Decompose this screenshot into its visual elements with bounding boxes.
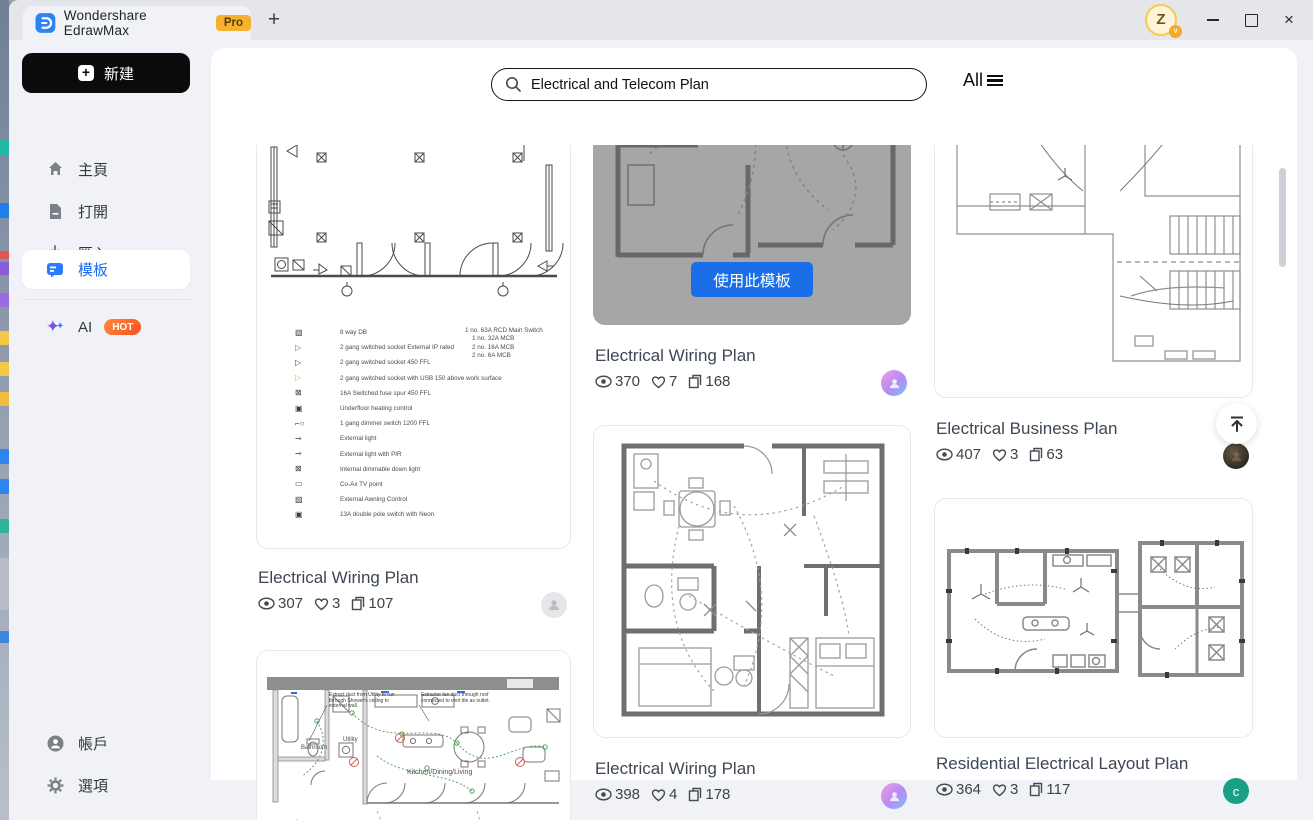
sidebar-item-open[interactable]: 打開 (22, 197, 190, 225)
likes-icon (992, 783, 1007, 797)
template-title[interactable]: Residential Electrical Layout Plan (936, 754, 1188, 774)
app-window: Wondershare EdrawMax Pro + Z ∨ × + 新建 主頁 (9, 0, 1313, 820)
legend-symbol-icon: ⊸ (295, 435, 309, 443)
room-label: Kitchen/Dining/Living (407, 769, 472, 776)
sidebar-item-label: 打開 (78, 201, 108, 222)
legend-row: ⊠ 16A Switched fuse spur 450 FFL (295, 386, 465, 401)
sidebar-item-label: 模板 (78, 259, 108, 280)
template-title[interactable]: Electrical Wiring Plan (258, 568, 419, 588)
author-avatar[interactable]: c (1223, 778, 1249, 804)
legend-symbol-icon: ▧ (295, 329, 309, 337)
legend-symbol-icon: ▷ (295, 374, 309, 382)
sidebar-item-templates[interactable]: 模板 (22, 250, 190, 289)
legend-symbol-icon: ▨ (295, 496, 309, 504)
home-icon (46, 160, 64, 178)
plan-annotation: Extract duct from Utility to run through… (329, 693, 401, 710)
app-tab[interactable]: Wondershare EdrawMax Pro (23, 6, 251, 40)
room-label: Bathroom (301, 745, 327, 751)
legend-label: 16A Switched fuse spur 450 FFL (340, 390, 431, 397)
template-card[interactable] (934, 145, 1253, 398)
hot-badge: HOT (104, 319, 141, 335)
copies-icon (1029, 782, 1043, 797)
edrawmax-logo-icon (35, 12, 56, 34)
close-button[interactable]: × (1275, 10, 1303, 30)
legend-label: 2 gang switched socket with USB 150 abov… (340, 375, 502, 382)
maximize-button[interactable] (1237, 10, 1265, 30)
search-input[interactable] (529, 76, 893, 94)
new-document-button[interactable]: + 新建 (22, 53, 190, 93)
legend-row: ⊸ External light (295, 431, 465, 446)
legend-symbol-icon: ⊠ (295, 465, 309, 473)
legend-label: 2 gang switched socket 450 FFL (340, 359, 431, 366)
content-panel: All (211, 48, 1297, 780)
legend-label: Internal dimmable down light (340, 466, 420, 473)
filter-menu-icon (987, 72, 1003, 89)
legend-symbol-icon: ▷ (295, 359, 309, 367)
minimize-button[interactable] (1199, 10, 1227, 30)
sidebar-item-label: 選項 (78, 775, 108, 796)
hover-overlay (593, 145, 911, 325)
filter-label: All (963, 70, 983, 91)
sidebar-item-home[interactable]: 主頁 (22, 155, 190, 183)
legend-label: External Awning Control (340, 496, 407, 503)
screen: Wondershare EdrawMax Pro + Z ∨ × + 新建 主頁 (0, 0, 1313, 820)
template-card[interactable]: Extract duct from Utility to run through… (256, 650, 571, 820)
views-icon (595, 788, 612, 801)
sidebar-item-ai[interactable]: ✦✦ AI HOT (22, 313, 190, 341)
use-template-button[interactable]: 使用此模板 (691, 262, 813, 297)
scrollbar-thumb[interactable] (1279, 168, 1286, 267)
likes-icon (651, 375, 666, 389)
likes-icon (992, 448, 1007, 462)
template-card[interactable]: ▧ 8 way DB ▷ 2 gang switched socket Exte… (256, 145, 571, 549)
legend-symbol-icon: ▷ (295, 344, 309, 352)
templates-icon (46, 261, 64, 279)
template-thumbnail (594, 426, 911, 738)
author-avatar[interactable] (541, 592, 567, 618)
template-stats: 364 3 117 (936, 781, 1070, 798)
legend-row: ⊸ External light with PIR (295, 447, 465, 462)
room-label: Utility (343, 737, 358, 743)
member-badge-icon: ∨ (1169, 25, 1182, 38)
legend-row: ▷ 2 gang switched socket External IP rat… (295, 340, 465, 355)
author-avatar[interactable] (1223, 443, 1249, 469)
category-filter[interactable]: All (963, 70, 1003, 91)
legend-symbol-icon: ▣ (295, 511, 309, 519)
search-bar[interactable] (491, 68, 927, 101)
new-tab-button[interactable]: + (261, 8, 287, 34)
account-icon (46, 734, 64, 752)
template-card[interactable] (934, 498, 1253, 738)
plan-annotation: Extractor fan duct through roof connecte… (421, 693, 493, 704)
legend-symbol-icon: ▭ (295, 480, 309, 488)
template-stats: 407 3 63 (936, 446, 1063, 463)
legend-row: ⊠ Internal dimmable down light (295, 462, 465, 477)
copies-icon (688, 374, 702, 389)
pro-badge: Pro (216, 15, 251, 31)
breaker-note: 1 no. 63A RCD Main Switch 1 no. 32A MCB … (465, 327, 543, 361)
legend-list: ▧ 8 way DB ▷ 2 gang switched socket Exte… (295, 325, 465, 522)
sidebar-divider (22, 299, 190, 300)
legend-row: ▣ 13A double pole switch with Neon (295, 507, 465, 522)
template-grid: ▧ 8 way DB ▷ 2 gang switched socket Exte… (211, 145, 1289, 820)
legend-row: ▭ Co-Ax TV point (295, 477, 465, 492)
legend-row: ▨ External Awning Control (295, 492, 465, 507)
new-document-label: 新建 (104, 63, 134, 84)
scroll-to-top-button[interactable] (1216, 403, 1257, 444)
legend-row: ⌐○ 1 gang dimmer switch 1200 FFL (295, 416, 465, 431)
legend-row: ▧ 8 way DB (295, 325, 465, 340)
template-title[interactable]: Electrical Business Plan (936, 419, 1117, 439)
copies-icon (351, 596, 365, 611)
template-card-hovered[interactable]: 使用此模板 (593, 145, 911, 325)
arrow-up-icon (1227, 414, 1247, 434)
legend-label: 13A double pole switch with Neon (340, 511, 434, 518)
legend-row: ▷ 2 gang switched socket 450 FFL (295, 355, 465, 370)
legend-label: External light with PIR (340, 451, 402, 458)
likes-icon (651, 788, 666, 802)
template-thumbnail (935, 145, 1253, 398)
template-thumbnail (935, 499, 1253, 738)
views-icon (595, 375, 612, 388)
legend-row: ▷ 2 gang switched socket with USB 150 ab… (295, 371, 465, 386)
sidebar-item-label: 主頁 (78, 159, 108, 180)
sidebar-item-label: AI (78, 319, 92, 336)
legend-label: 2 gang switched socket External IP rated (340, 344, 454, 351)
views-icon (258, 597, 275, 610)
template-thumbnail (257, 651, 571, 820)
gear-icon (46, 776, 64, 794)
sidebar-item-label: 帳戶 (78, 733, 108, 754)
search-icon (505, 76, 522, 93)
copies-icon (688, 787, 702, 802)
sidebar-item-options[interactable]: 選項 (22, 771, 190, 799)
legend-row: ▣ Underfloor heating control (295, 401, 465, 416)
document-icon (46, 202, 64, 220)
legend-label: 8 way DB (340, 329, 367, 336)
app-title: Wondershare EdrawMax (64, 8, 208, 38)
legend-symbol-icon: ⊠ (295, 389, 309, 397)
sidebar: + 新建 主頁 打開 匯入 (9, 40, 211, 820)
desktop-edge (0, 0, 9, 820)
copies-icon (1029, 447, 1043, 462)
legend-symbol-icon: ▣ (295, 405, 309, 413)
template-stats: 398 4 178 (595, 786, 730, 803)
title-bar: Wondershare EdrawMax Pro + Z ∨ × (9, 0, 1313, 40)
template-thumbnail (257, 145, 571, 321)
legend-symbol-icon: ⌐○ (295, 420, 309, 428)
likes-icon (314, 597, 329, 611)
legend-label: 1 gang dimmer switch 1200 FFL (340, 420, 430, 427)
ai-sparkle-icon: ✦✦ (46, 318, 64, 336)
sidebar-item-account[interactable]: 帳戶 (22, 729, 190, 757)
views-icon (936, 448, 953, 461)
author-avatar[interactable] (881, 370, 907, 396)
template-title[interactable]: Electrical Wiring Plan (595, 759, 756, 779)
views-icon (936, 783, 953, 796)
template-stats: 307 3 107 (258, 595, 393, 612)
template-stats: 370 7 168 (595, 373, 730, 390)
legend-label: Underfloor heating control (340, 405, 412, 412)
legend-label: External light (340, 435, 376, 442)
template-card[interactable] (593, 425, 911, 738)
template-title[interactable]: Electrical Wiring Plan (595, 346, 756, 366)
legend-symbol-icon: ⊸ (295, 450, 309, 458)
plus-icon: + (78, 65, 94, 81)
author-avatar[interactable] (881, 783, 907, 809)
legend-label: Co-Ax TV point (340, 481, 383, 488)
